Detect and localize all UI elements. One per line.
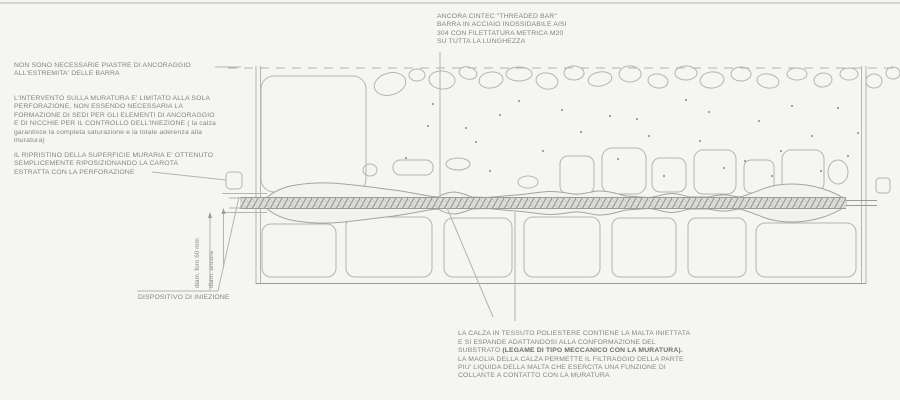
note-sock-post: LA MAGLIA DELLA CALZA PERMETTE IL FILTRA… (458, 356, 684, 380)
masonry-stones (261, 65, 900, 277)
dim-label-hole-diameter: diam. foro 60 mm (194, 238, 201, 288)
end-cap-box (876, 178, 890, 193)
threaded-bar (240, 198, 877, 209)
dim-label-anchor-diameter: diam. ancora (208, 251, 215, 288)
note-surface-restore: IL RIPRISTINO DELLA SUPERFICIE MURARIA E… (14, 152, 234, 177)
wall-outline (228, 66, 894, 284)
technical-drawing-sheet: ANCORA CINTEC "THREADED BAR" BARRA IN AC… (0, 0, 900, 400)
note-sock-bold: (LEGAME DI TIPO MECCANICO CON LA MURATUR… (502, 347, 683, 354)
injection-device-label: DISPOSITIVO DI INIEZIONE (138, 294, 258, 302)
note-intervention: L'INTERVENTO SULLA MURATURA E' LIMITATO … (14, 95, 234, 145)
note-sock-description: LA CALZA IN TESSUTO POLIESTERE CONTIENE … (458, 322, 723, 381)
note-anchor-spec: ANCORA CINTEC "THREADED BAR" BARRA IN AC… (437, 13, 597, 47)
rubble-specks (405, 99, 859, 177)
technical-drawing (0, 0, 900, 400)
note-no-anchor-plates: NON SONO NECESSARIE PIASTRE DI ANCORAGGI… (14, 62, 249, 79)
